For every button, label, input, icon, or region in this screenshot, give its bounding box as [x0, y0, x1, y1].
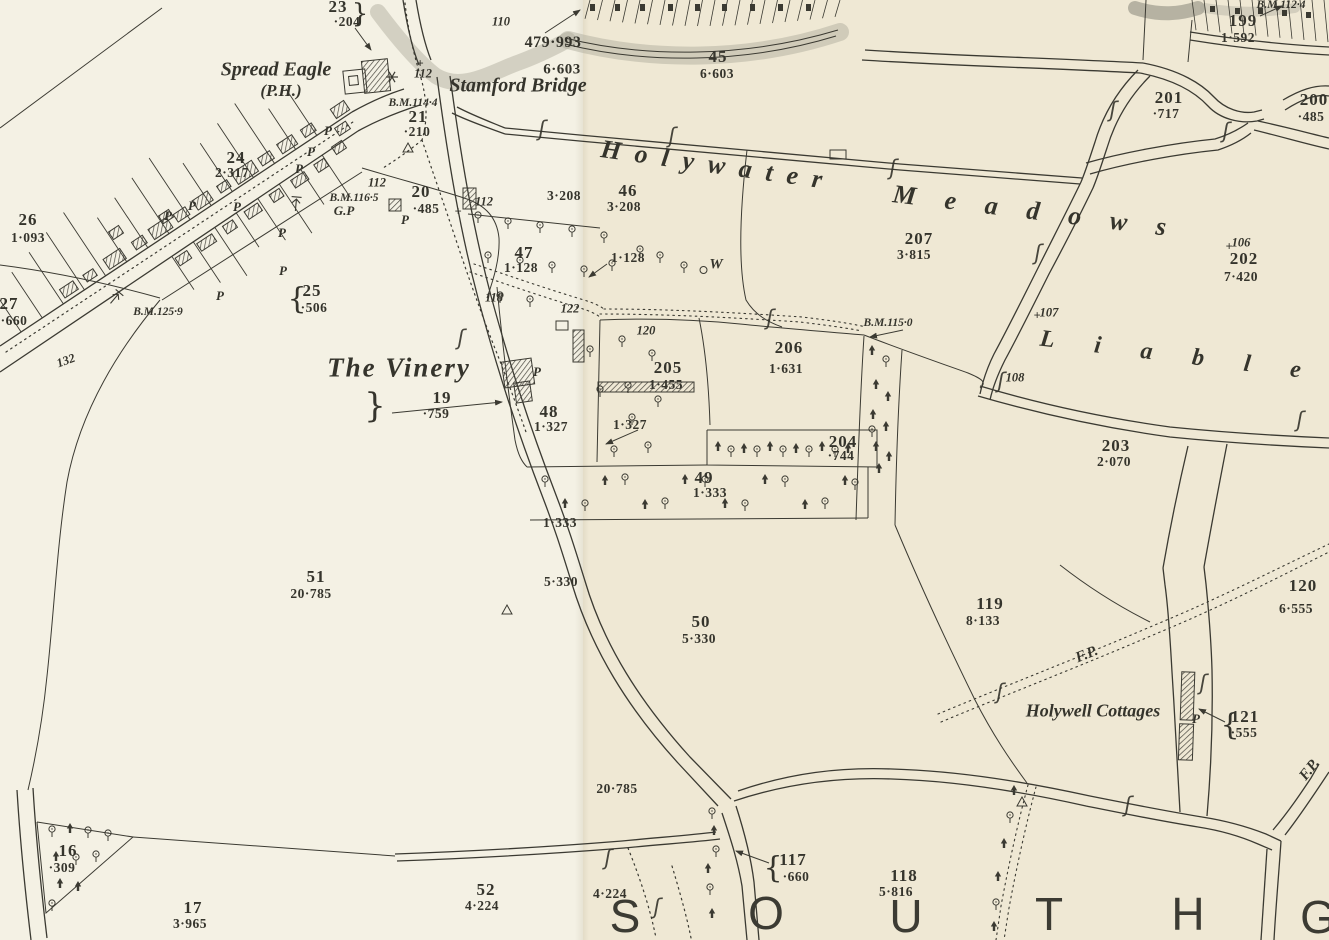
map-label: 107 — [1040, 306, 1059, 321]
map-label: 2·317 — [215, 165, 249, 181]
map-label: + — [1033, 309, 1040, 324]
map-label: 1·333 — [543, 515, 577, 531]
map-label: ʃ — [1199, 671, 1206, 695]
map-label: 19 — [433, 388, 452, 408]
map-label: F.P. — [1296, 756, 1323, 784]
map-label: P — [307, 144, 315, 160]
map-label: ·660 — [1, 313, 28, 329]
map-label: ʃ — [997, 369, 1004, 393]
map-label: P — [233, 199, 241, 215]
map-label: + — [454, 205, 461, 220]
map-label: 3·208 — [607, 199, 641, 215]
map-label: 3·208 — [547, 188, 581, 204]
map-label: F.P. — [1073, 643, 1101, 667]
map-label: ·485 — [413, 201, 440, 217]
map-label: 207 — [905, 229, 934, 249]
map-label: 118 — [890, 866, 918, 886]
map-label: 122 — [561, 302, 580, 317]
map-label: 3·965 — [173, 916, 207, 932]
map-label: P — [533, 364, 541, 380]
map-label: 119 — [976, 594, 1004, 614]
map-label: P — [401, 212, 409, 228]
map-label: ·210 — [404, 124, 431, 140]
map-label: ʃ — [889, 156, 896, 180]
map-label: 199 — [1229, 11, 1258, 31]
map-label: 112 — [475, 195, 493, 210]
map-label: P — [279, 263, 287, 279]
map-label: B.M.114·4 — [389, 97, 438, 109]
map-label: 6·555 — [1279, 601, 1313, 617]
map-label: ʃ — [1124, 793, 1131, 817]
map-label: ·485 — [1298, 109, 1325, 125]
map-label: 1·333 — [693, 485, 727, 501]
map-label: ʃ — [1296, 408, 1303, 432]
map-label: 5·330 — [544, 574, 578, 590]
map-label: 121 — [1231, 707, 1260, 727]
map-label: ʃ — [653, 895, 660, 919]
map-label: G.P — [334, 203, 355, 219]
map-label: 8·133 — [966, 613, 1000, 629]
map-label: 1·327 — [534, 419, 568, 435]
map-label: 1·631 — [769, 361, 803, 377]
map-label: ʃ — [1222, 119, 1229, 143]
map-label: 52 — [477, 880, 496, 900]
map-label: 1·455 — [649, 377, 683, 393]
map-label: 5·330 — [682, 631, 716, 647]
map-label: 108 — [1006, 371, 1025, 386]
map-label: 106 — [1232, 236, 1251, 251]
map-label: 46 — [619, 181, 638, 201]
map-label: 16 — [59, 841, 78, 861]
map-label: 4·224 — [465, 898, 499, 914]
map-label: Stamford Bridge — [449, 75, 586, 98]
map-label: ·744 — [828, 448, 855, 464]
map-label: + — [1225, 240, 1232, 255]
map-label: 50 — [692, 612, 711, 632]
map-label: 3·815 — [897, 247, 931, 263]
map-label: P — [188, 198, 196, 214]
map-label: P — [324, 123, 332, 139]
map-label: 17 — [184, 898, 203, 918]
map-label: ·555 — [1231, 725, 1258, 741]
map-label: 202 — [1230, 249, 1259, 269]
map-label: O — [748, 886, 784, 940]
map-label: 117 — [779, 850, 807, 870]
map-label: 200 — [1300, 90, 1329, 110]
map-label: Liable — [1038, 326, 1329, 390]
map-label: 110 — [492, 15, 510, 30]
map-label: 20·785 — [596, 781, 637, 797]
map-label: Holywell Cottages — [1026, 701, 1161, 722]
map-label: + — [416, 57, 423, 72]
map-label: ʃ — [766, 306, 773, 330]
map-label: 112 — [368, 176, 386, 191]
map-label: 118 — [485, 291, 503, 306]
map-label: Meadows — [891, 179, 1197, 246]
map-label: P — [164, 208, 172, 224]
map-label: U — [889, 889, 922, 940]
map-label: P — [1192, 711, 1200, 727]
map-label: 1·592 — [1221, 30, 1255, 46]
map-label: ʃ — [457, 326, 464, 350]
map-label: ʃ — [604, 846, 611, 870]
map-label: ʃ — [1109, 98, 1116, 122]
map-label: B.M.115·0 — [864, 317, 913, 329]
map-label: B.M.125·9 — [133, 306, 183, 318]
map-label: B.M.112·4 — [1257, 0, 1306, 11]
map-label: 6·603 — [700, 66, 734, 82]
map-label: H — [1171, 887, 1204, 940]
map-label: 26 — [19, 210, 38, 230]
map-label: ·309 — [49, 860, 76, 876]
map-label: } — [364, 386, 386, 426]
map-label: P — [278, 225, 286, 241]
map-label: 20 — [412, 182, 431, 202]
map-label: G — [1300, 890, 1329, 940]
map-label: P — [295, 161, 303, 177]
map-label: ʃ — [538, 117, 545, 141]
map-label: The Vinery — [327, 353, 471, 384]
map-label: 45 — [709, 47, 728, 67]
map-viewport: 23·204}242·317261·09327·660{25·50621·210… — [0, 0, 1329, 940]
map-label: 27 — [0, 294, 19, 314]
map-label: P — [216, 288, 224, 304]
map-label: 1·128 — [504, 260, 538, 276]
map-label: 1·128 — [611, 250, 645, 266]
map-label: ʃ — [668, 124, 675, 148]
map-label: 7·420 — [1224, 269, 1258, 285]
map-label: 120 — [637, 324, 656, 339]
map-label: ·717 — [1153, 106, 1180, 122]
map-label: 51 — [307, 567, 326, 587]
map-label: T — [1035, 887, 1063, 940]
map-label: Spread Eagle — [221, 59, 332, 82]
map-label: ·759 — [423, 406, 450, 422]
map-label: 132 — [55, 351, 78, 372]
map-labels: 23·204}242·317261·09327·660{25·50621·210… — [0, 0, 1329, 940]
map-label: 205 — [654, 358, 683, 378]
map-label: 201 — [1155, 88, 1184, 108]
map-label: W — [709, 257, 722, 274]
map-label: S — [610, 889, 641, 940]
map-label: 120 — [1289, 576, 1318, 596]
map-label: ʃ — [996, 680, 1003, 704]
map-label: 25 — [303, 281, 322, 301]
map-label: ʃ — [1034, 241, 1041, 265]
map-label: } — [352, 0, 369, 29]
map-label: 206 — [775, 338, 804, 358]
map-label: 1·327 — [613, 417, 647, 433]
map-label: ·660 — [783, 869, 810, 885]
map-label: ·506 — [301, 300, 328, 316]
map-label: 1·093 — [11, 230, 45, 246]
map-label: 20·785 — [290, 586, 331, 602]
map-label: 203 — [1102, 436, 1131, 456]
map-label: 479·993 — [525, 34, 582, 52]
map-label: (P.H.) — [260, 81, 301, 101]
map-label: 2·070 — [1097, 454, 1131, 470]
